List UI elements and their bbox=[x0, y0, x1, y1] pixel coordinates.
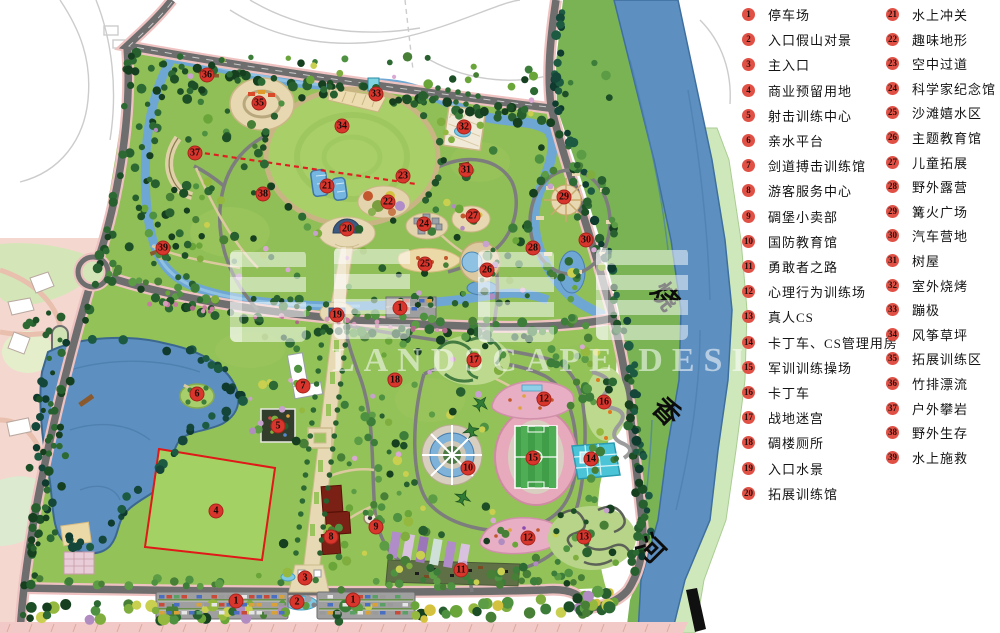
map-marker-36: 36 bbox=[200, 68, 215, 83]
map-marker-27: 27 bbox=[466, 209, 481, 224]
map-marker-16: 16 bbox=[597, 395, 612, 410]
map-marker-39: 39 bbox=[156, 241, 171, 256]
park-masterplan: LANDSCAPE DESIGN 烧香河 1112345678910111212… bbox=[0, 0, 1000, 633]
map-marker-1: 1 bbox=[346, 593, 361, 608]
map-marker-19: 19 bbox=[330, 308, 345, 323]
map-marker-33: 33 bbox=[369, 87, 384, 102]
map-marker-24: 24 bbox=[417, 217, 432, 232]
map-marker-11: 11 bbox=[454, 563, 469, 578]
map-marker-5: 5 bbox=[271, 419, 286, 434]
map-marker-12: 12 bbox=[537, 392, 552, 407]
map-marker-20: 20 bbox=[340, 222, 355, 237]
map-marker-28: 28 bbox=[526, 241, 541, 256]
map-marker-9: 9 bbox=[369, 520, 384, 535]
map-marker-2: 2 bbox=[290, 595, 305, 610]
map-marker-37: 37 bbox=[188, 146, 203, 161]
map-marker-14: 14 bbox=[584, 452, 599, 467]
map-marker-38: 38 bbox=[256, 187, 271, 202]
map-marker-17: 17 bbox=[467, 353, 482, 368]
map-marker-18: 18 bbox=[388, 373, 403, 388]
map-marker-12: 12 bbox=[521, 531, 536, 546]
map-marker-15: 15 bbox=[526, 451, 541, 466]
map-marker-30: 30 bbox=[579, 233, 594, 248]
map-marker-10: 10 bbox=[461, 461, 476, 476]
map-marker-32: 32 bbox=[457, 120, 472, 135]
map-marker-13: 13 bbox=[577, 530, 592, 545]
parterre bbox=[64, 552, 94, 574]
map-marker-4: 4 bbox=[209, 504, 224, 519]
map-marker-8: 8 bbox=[324, 530, 339, 545]
map-marker-7: 7 bbox=[296, 379, 311, 394]
map-marker-22: 22 bbox=[381, 195, 396, 210]
map-marker-26: 26 bbox=[480, 263, 495, 278]
masterplan-map bbox=[0, 0, 1000, 633]
map-marker-25: 25 bbox=[418, 257, 433, 272]
map-marker-1: 1 bbox=[393, 301, 408, 316]
beach bbox=[61, 522, 92, 546]
map-marker-6: 6 bbox=[190, 387, 205, 402]
map-marker-23: 23 bbox=[396, 169, 411, 184]
map-marker-35: 35 bbox=[252, 96, 267, 111]
map-marker-21: 21 bbox=[320, 179, 335, 194]
map-marker-34: 34 bbox=[335, 119, 350, 134]
map-marker-29: 29 bbox=[557, 190, 572, 205]
map-marker-31: 31 bbox=[459, 163, 474, 178]
map-marker-1: 1 bbox=[229, 594, 244, 609]
map-marker-3: 3 bbox=[298, 571, 313, 586]
